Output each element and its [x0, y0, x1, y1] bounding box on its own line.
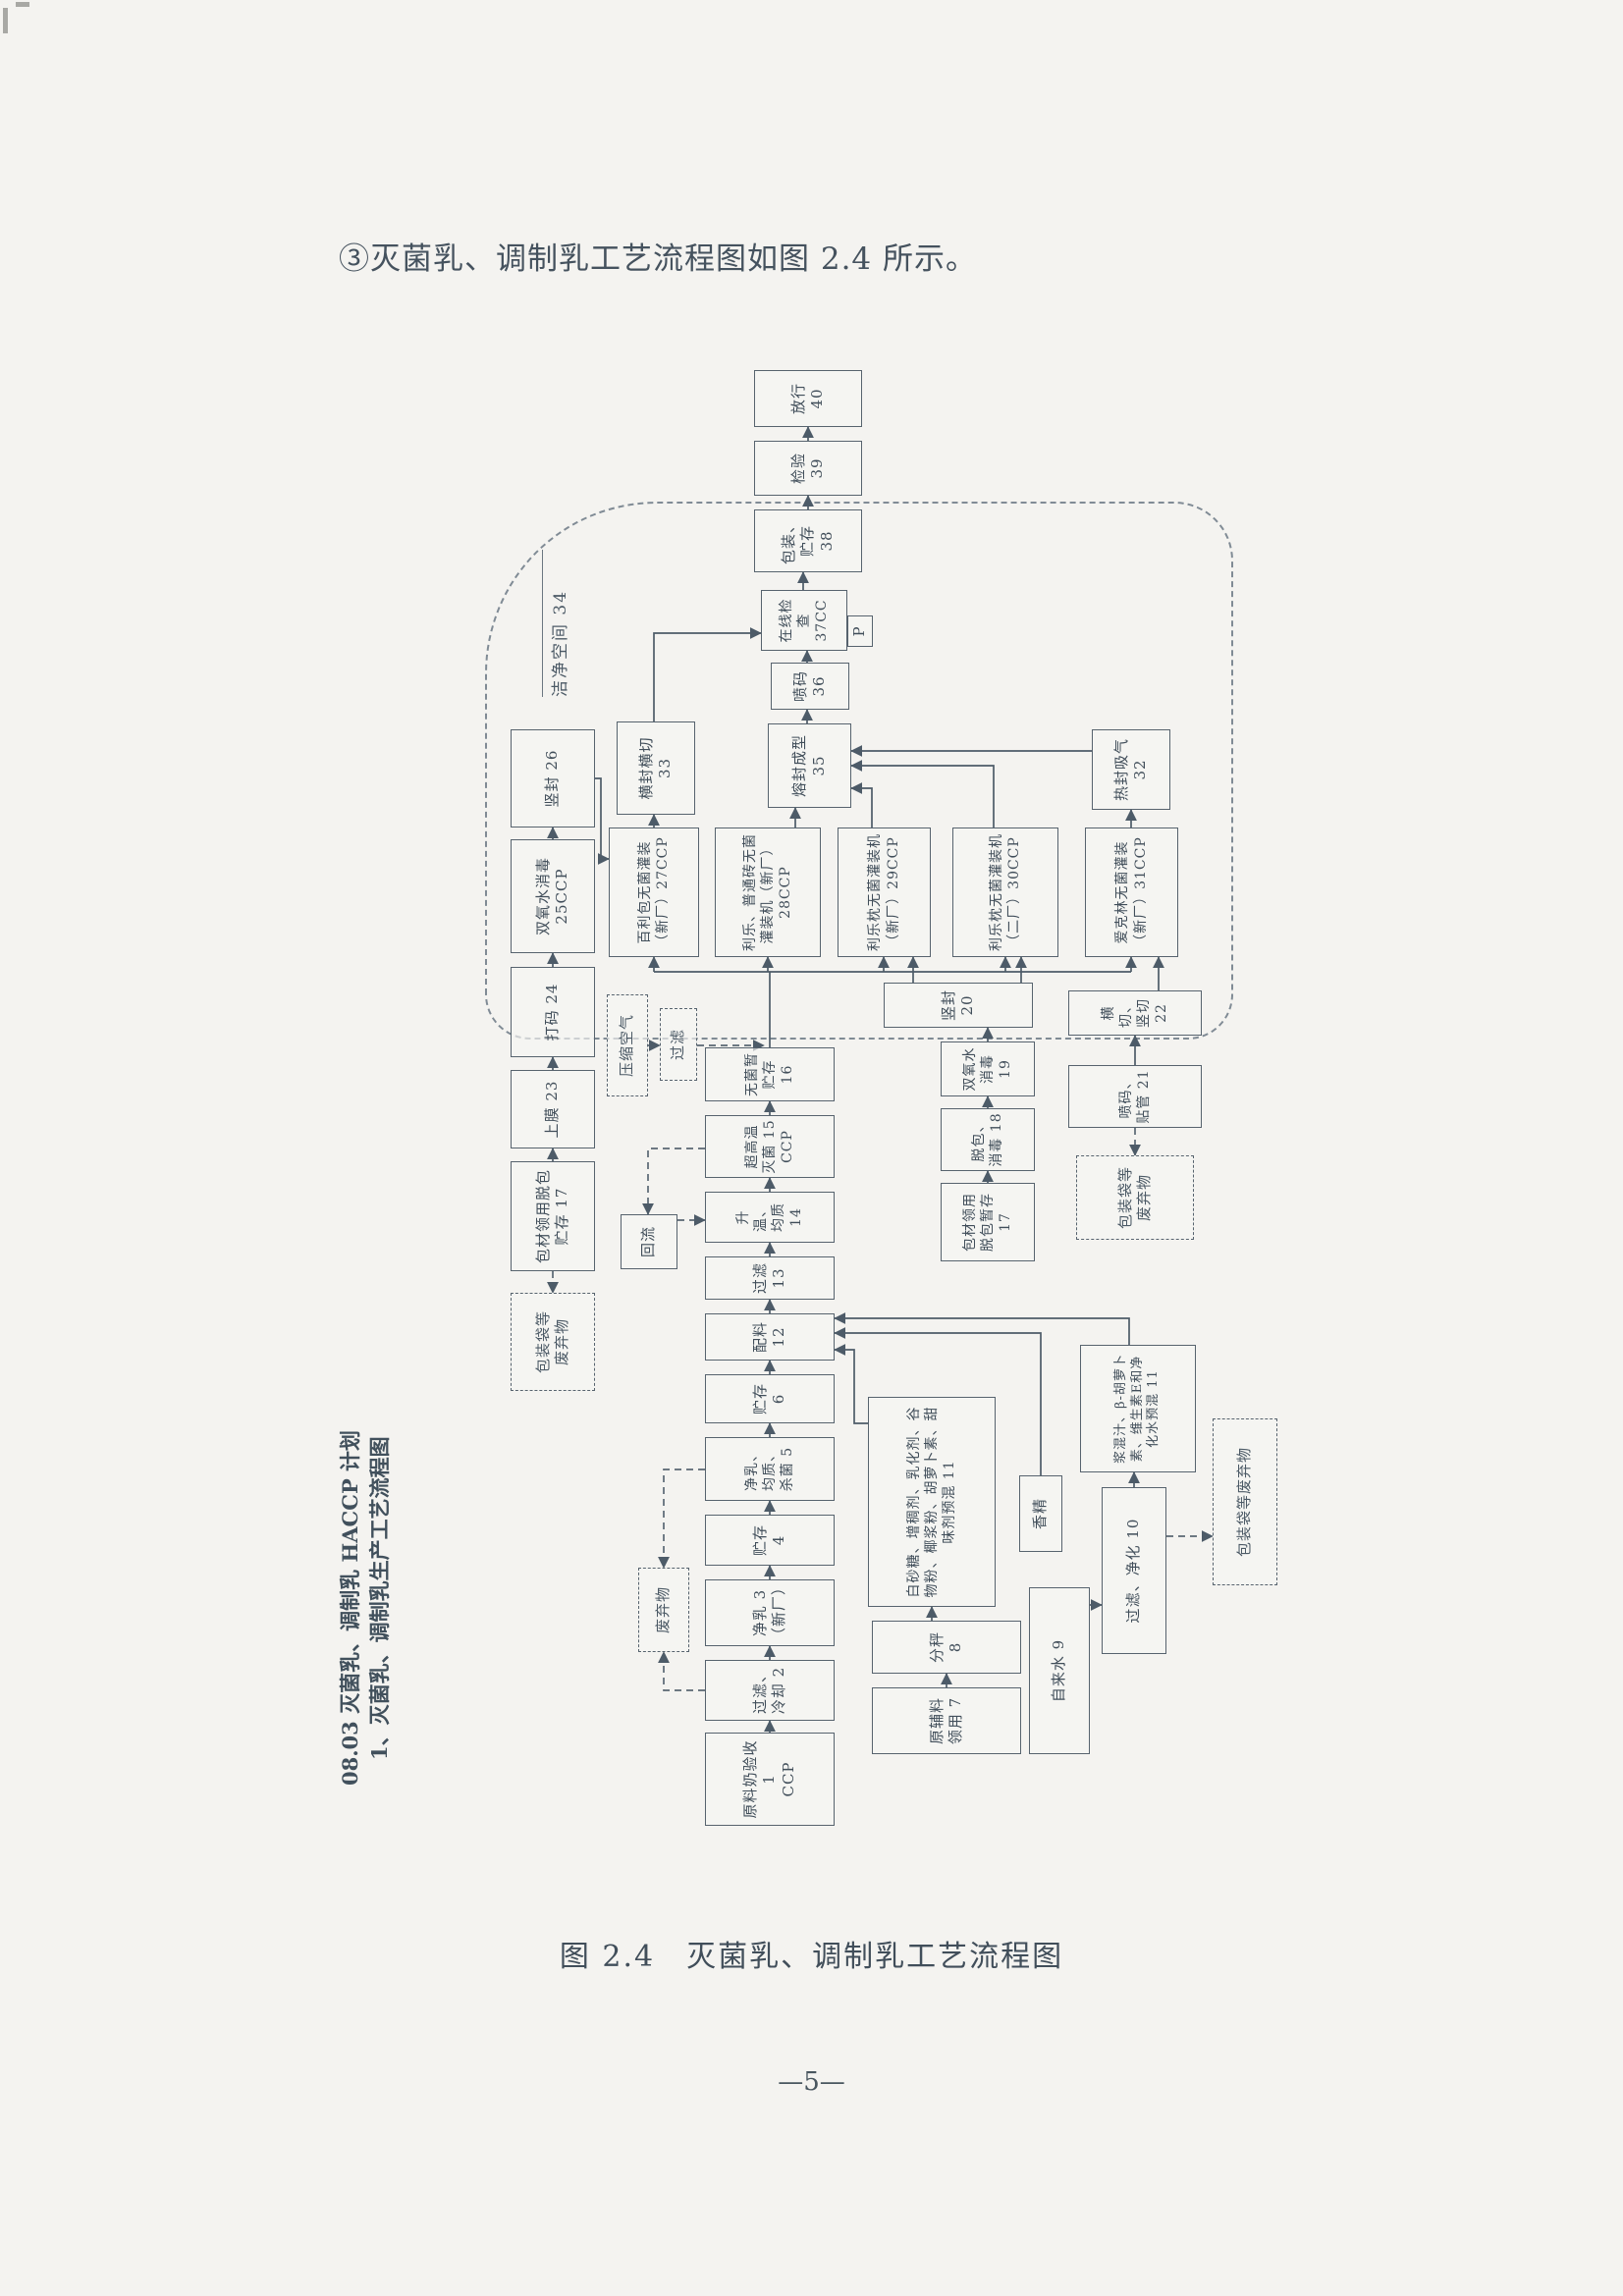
flow-node-n1: 原料奶验收 1 CCP: [705, 1733, 835, 1826]
flowchart-rotated-wrap: 08.03 灭菌乳、调制乳 HACCP 计划 1、灭菌乳、调制乳生产工艺流程图 …: [334, 348, 1286, 1880]
flow-edge-45: [835, 1350, 868, 1423]
flow-node-n21: 喷码、贴管 21: [1068, 1065, 1202, 1128]
flow-node-n20: 竖封 20: [884, 983, 1033, 1028]
flow-node-n26: 竖封 26: [511, 729, 595, 828]
flow-node-n15: 超高温灭菌 15 CCP: [705, 1115, 835, 1178]
flow-node-n18: 脱包、消毒 18: [941, 1108, 1035, 1171]
flow-node-n7: 原辅料领用 7: [872, 1687, 1021, 1754]
flow-node-n12: 配料 12: [705, 1313, 835, 1361]
flow-node-n13: 过滤 13: [705, 1256, 835, 1300]
flow-node-n6: 贮存 6: [705, 1374, 835, 1423]
flow-node-n28: 利乐、普通砖无菌灌装机（新厂）28CCP: [715, 828, 821, 957]
diagram-title-line2: 1、灭菌乳、调制乳生产工艺流程图: [367, 1436, 392, 1760]
diagram-title: 08.03 灭菌乳、调制乳 HACCP 计划 1、灭菌乳、调制乳生产工艺流程图: [336, 1430, 396, 1786]
flow-edge-47: [835, 1318, 1129, 1345]
flow-node-n22: 横切、竖切 22: [1068, 990, 1202, 1036]
section-heading: ③灭菌乳、调制乳工艺流程图如图 2.4 所示。: [339, 234, 977, 278]
flow-node-n2: 过滤、冷却 2: [705, 1660, 835, 1721]
flow-node-n14: 升温、均质 14: [705, 1192, 835, 1243]
flow-node-n8: 分秤 8: [872, 1621, 1021, 1674]
flow-node-n32: 热封吸气 32: [1092, 729, 1170, 810]
flow-node-n25: 双氧水消毒 25CCP: [511, 839, 595, 953]
flow-node-n3: 净乳 3（新厂）: [705, 1579, 835, 1646]
flow-node-n24: 打码 24: [511, 967, 595, 1057]
scan-speck: [16, 2, 29, 7]
flow-node-n37: 在线检查 37CC: [761, 590, 847, 651]
flow-node-n30: 利乐枕无菌灌装机（二厂）30CCP: [952, 828, 1058, 957]
page-number: —5—: [0, 2067, 1623, 2097]
flow-node-reflux: 回流: [621, 1214, 677, 1269]
flow-node-n36: 喷码 36: [771, 663, 849, 710]
flow-node-n4: 贮存 4: [705, 1515, 835, 1566]
flow-node-n35: 熔封成型 35: [768, 723, 851, 808]
flow-node-n31: 爱克林无菌灌装（新厂）31CCP: [1085, 828, 1178, 957]
flow-node-n39: 检验 39: [754, 441, 862, 496]
flow-node-n38: 包装、贮存 38: [754, 509, 862, 572]
flow-edge-53: [648, 1148, 705, 1214]
clean-area-label: 洁净空间 34: [542, 550, 570, 697]
flow-node-n40: 放行 40: [754, 370, 862, 427]
document-page: ③灭菌乳、调制乳工艺流程图如图 2.4 所示。 08.03 灭菌乳、调制乳 HA…: [0, 0, 1623, 2296]
flow-node-n17-right: 包材领用脱包暂存 17: [941, 1183, 1035, 1261]
flow-node-essence: 香精: [1019, 1475, 1062, 1552]
flow-node-n9: 自来水 9: [1029, 1587, 1090, 1754]
flow-node-n23: 上膜 23: [511, 1070, 595, 1148]
flow-node-n11-left: 白砂糖、增稠剂、乳化剂、谷物粉、椰浆粉、胡萝卜素、甜味剂预混 11: [868, 1397, 996, 1607]
flow-node-n19: 双氧水消毒 19: [941, 1041, 1035, 1096]
flow-node-n33: 横封横切 33: [617, 721, 695, 815]
figure-caption: 图 2.4 灭菌乳、调制乳工艺流程图: [0, 1932, 1623, 1975]
flow-node-waste-pack: 包装袋等 废弃物: [1076, 1155, 1194, 1240]
flow-node-n17-film: 包材领用脱包贮存 17: [511, 1161, 595, 1271]
flowchart: 08.03 灭菌乳、调制乳 HACCP 计划 1、灭菌乳、调制乳生产工艺流程图 …: [334, 348, 1286, 1880]
flow-node-waste-right: 包装袋等废弃物: [1213, 1418, 1277, 1585]
flow-node-compressed-air: 压缩空气: [607, 994, 648, 1096]
flow-node-n29: 利乐枕无菌灌装机（新厂）29CCP: [838, 828, 931, 957]
flow-node-n37-p: P: [847, 615, 873, 647]
flow-node-n11-right: 浆混汁、β-胡萝卜素、维生素E和净化水预混 11: [1080, 1345, 1196, 1472]
flow-node-n10: 过滤、净化 10: [1102, 1487, 1166, 1654]
scan-speck: [3, 8, 8, 33]
flow-node-n16: 无菌暂贮存 16: [705, 1047, 835, 1101]
flow-edge-51: [664, 1652, 705, 1690]
flow-node-waste-mid: 废弃物: [638, 1568, 689, 1652]
diagram-title-line1: 08.03 灭菌乳、调制乳 HACCP 计划: [338, 1430, 362, 1786]
flow-edge-52: [664, 1469, 705, 1568]
flow-node-air-filter: 过滤: [660, 1008, 697, 1081]
flow-node-n27: 百利包无菌灌装（新厂）27CCP: [609, 828, 699, 957]
flow-node-waste-film: 包装袋等 废弃物: [511, 1293, 595, 1391]
flow-node-n5: 净乳、均质、杀菌 5: [705, 1437, 835, 1501]
